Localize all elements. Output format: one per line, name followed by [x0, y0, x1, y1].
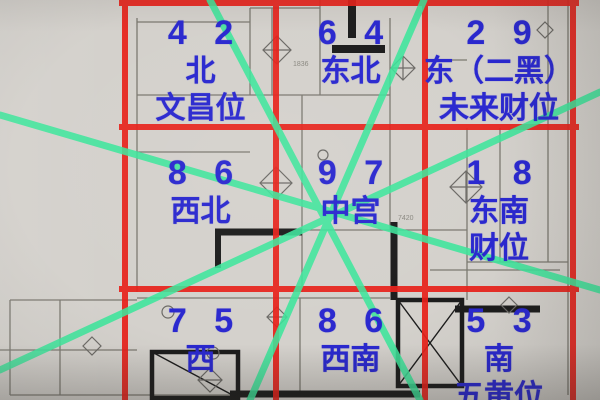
- palace-cell-northwest: 8 6 西北: [125, 127, 276, 315]
- palace-cell-southeast: 1 8 东南 财位: [425, 127, 573, 315]
- flying-star-numbers: 5 3: [466, 301, 531, 341]
- palace-direction: 东北: [321, 53, 381, 90]
- palace-direction: 东南: [469, 193, 529, 230]
- palace-direction: 东（二黑）: [424, 53, 574, 90]
- palace-direction: 西: [186, 341, 216, 378]
- palace-cell-west: 7 5 西: [125, 289, 276, 400]
- flying-star-numbers: 7 5: [168, 301, 233, 341]
- palace-cell-southwest: 8 6 西南: [276, 289, 425, 400]
- palace-cell-east: 2 9 东（二黑） 未来财位: [425, 3, 573, 137]
- flying-star-numbers: 8 6: [318, 301, 383, 341]
- palace-direction: 中宫: [321, 193, 381, 230]
- fengshui-floorplan-photo: 1836 7420 4 2 北 文昌位 6 4: [0, 0, 600, 400]
- palace-direction: 西北: [171, 193, 231, 230]
- palace-direction: 北: [186, 53, 216, 90]
- palace-cell-northeast: 6 4 东北: [276, 3, 425, 137]
- flying-star-numbers: 2 9: [466, 13, 531, 53]
- palace-note: 财位: [469, 230, 529, 267]
- flying-star-numbers: 9 7: [318, 153, 383, 193]
- palace-cell-north: 4 2 北 文昌位: [125, 3, 276, 137]
- palace-note: 文昌位: [156, 90, 246, 127]
- palace-note: 五黄位: [454, 378, 544, 400]
- flying-star-numbers: 6 4: [318, 13, 383, 53]
- flying-star-numbers: 1 8: [466, 153, 531, 193]
- palace-direction: 南: [484, 341, 514, 378]
- palace-direction: 西南: [321, 341, 381, 378]
- palace-cell-south: 5 3 南 五黄位: [425, 289, 573, 400]
- flying-star-numbers: 4 2: [168, 13, 233, 53]
- palace-annotations: 4 2 北 文昌位 6 4 东北 2 9 东（二黑） 未来财位 8 6 西北 9…: [0, 0, 600, 400]
- flying-star-numbers: 8 6: [168, 153, 233, 193]
- palace-note: 未来财位: [439, 90, 559, 127]
- palace-cell-center: 9 7 中宫: [276, 127, 425, 315]
